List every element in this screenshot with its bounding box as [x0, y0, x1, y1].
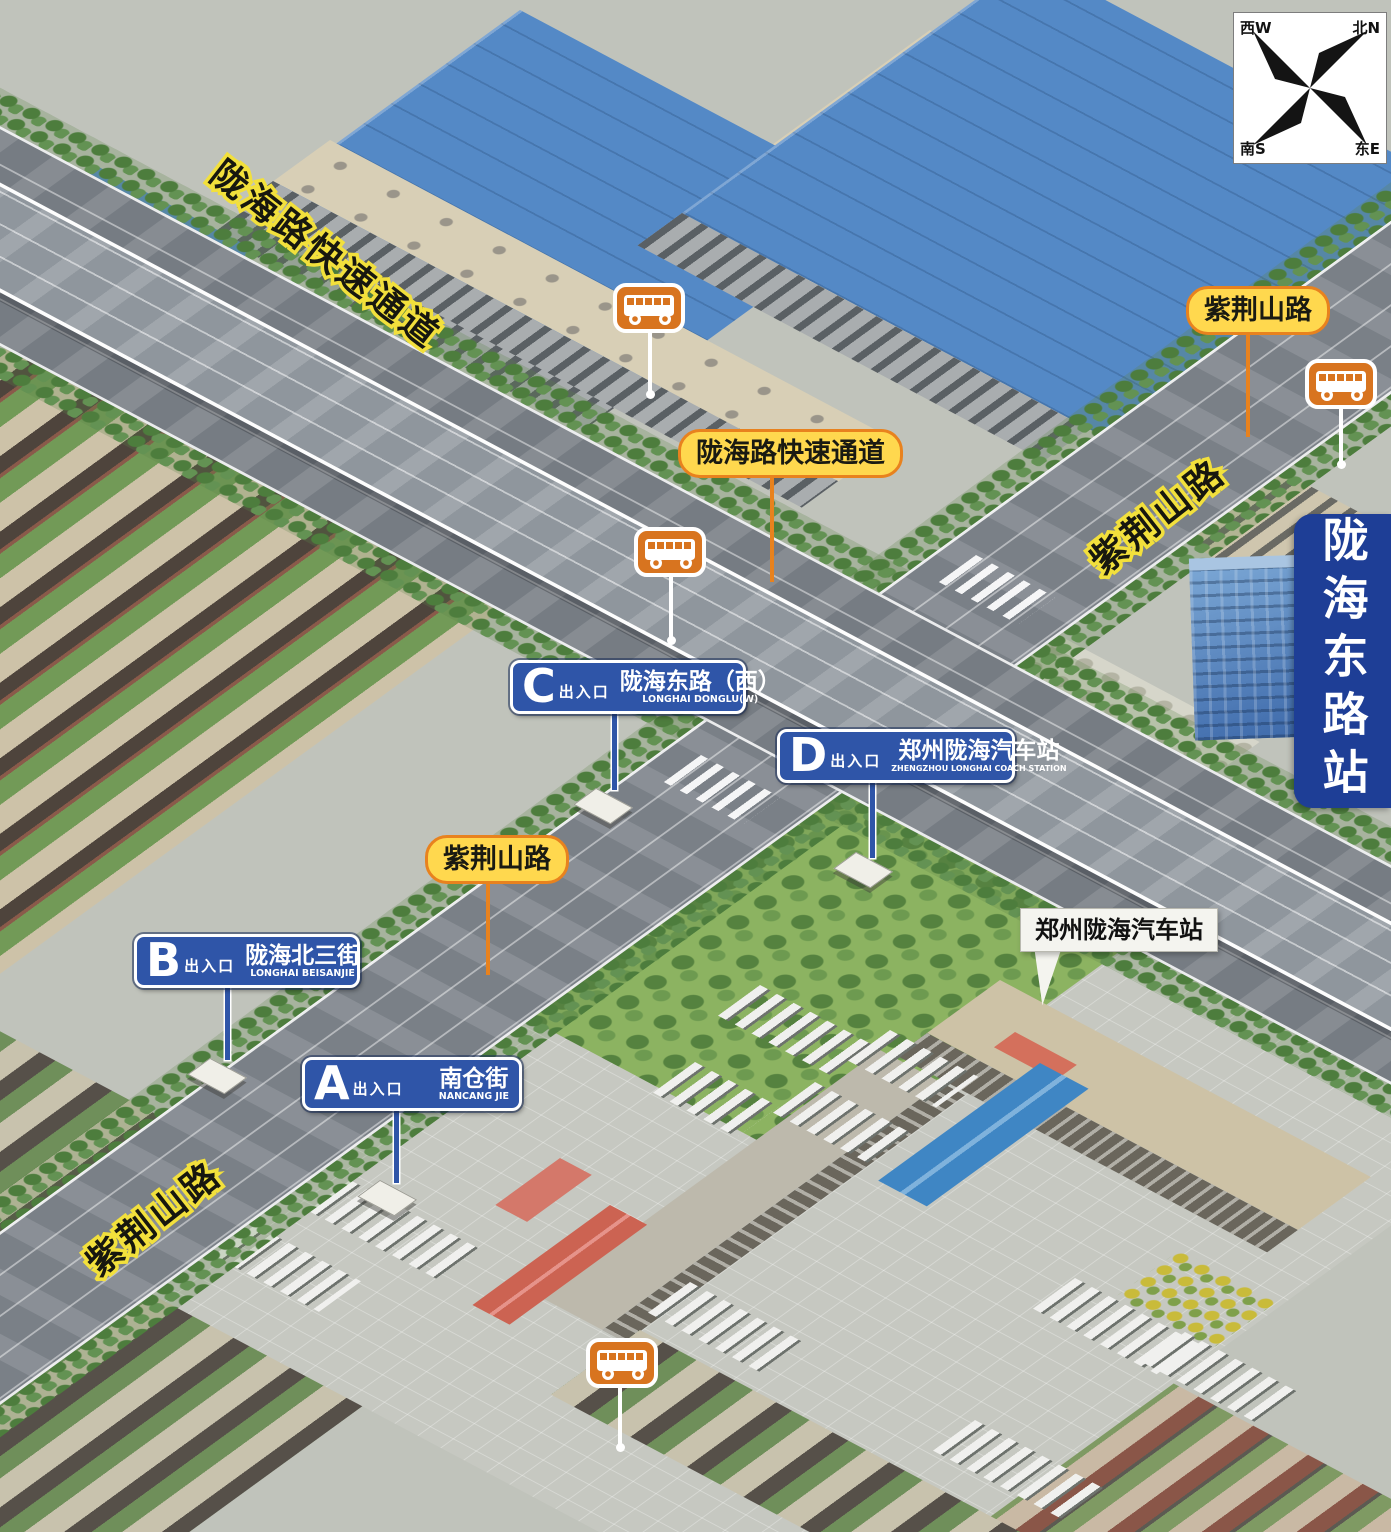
- station-name-banner: 陇海东路站: [1294, 514, 1391, 808]
- entrance-suffix: 出入口: [830, 750, 881, 771]
- entrance-suffix: 出入口: [184, 955, 235, 976]
- entrance-street-zh: 陇海东路（西）: [620, 669, 781, 695]
- entrance-street-en: ZHENGZHOU LONGHAI COACH STATION: [891, 765, 1066, 774]
- bus-stop-dot: [646, 390, 655, 399]
- station-area-map: 陇海路快速通道 紫荆山路 紫荆山路 陇海路快速通道 紫荆山路 紫荆山路 C 出入…: [0, 0, 1391, 1532]
- entrance-sign-c: C 出入口 陇海东路（西） LONGHAI DONGLU(W): [510, 660, 746, 714]
- entrance-street-en: LONGHAI DONGLU(W): [642, 695, 758, 705]
- entrance-sign-a: A 出入口 南仓街 NANCANG JIE: [302, 1057, 522, 1111]
- entrance-suffix: 出入口: [353, 1078, 404, 1099]
- label-pointer: [486, 878, 490, 975]
- label-longhai-expressway: 陇海路快速通道: [678, 429, 903, 478]
- bus-stop-icon: [613, 283, 685, 337]
- bus-stop-pole: [669, 574, 673, 638]
- bus-stop-icon: [634, 527, 706, 581]
- entrance-a-stem: [394, 1109, 399, 1183]
- compass-west-label: 西W: [1240, 17, 1272, 38]
- entrance-suffix: 出入口: [559, 681, 610, 702]
- label-zijingshan-mid: 紫荆山路: [425, 835, 569, 884]
- entrance-street-en: LONGHAI BEISANJIE: [250, 969, 355, 979]
- entrance-street-en: NANCANG JIE: [439, 1092, 509, 1102]
- bus-stop-dot: [667, 636, 676, 645]
- compass-south-label: 南S: [1240, 138, 1266, 159]
- bus-stop-pole: [618, 1385, 622, 1445]
- entrance-street-zh: 郑州陇海汽车站: [898, 738, 1059, 764]
- entrance-letter: D: [789, 735, 827, 776]
- entrance-letter: A: [314, 1063, 350, 1104]
- entrance-street-zh: 南仓街: [439, 1066, 508, 1092]
- compass-north-label: 北N: [1352, 17, 1380, 38]
- entrance-letter: C: [522, 666, 556, 707]
- entrance-sign-d: D 出入口 郑州陇海汽车站 ZHENGZHOU LONGHAI COACH ST…: [777, 729, 1015, 783]
- compass-rose: 西W 北N 南S 东E: [1233, 12, 1387, 164]
- bus-stop-dot: [616, 1443, 625, 1452]
- label-zijingshan-top: 紫荆山路: [1186, 286, 1330, 335]
- bus-stop-pole: [648, 330, 652, 392]
- entrance-b-stem: [225, 984, 230, 1060]
- bus-stop-icon: [586, 1338, 658, 1392]
- entrance-sign-b: B 出入口 陇海北三街 LONGHAI BEISANJIE: [134, 934, 360, 988]
- bus-stop-icon: [1305, 359, 1377, 413]
- entrance-street-zh: 陇海北三街: [245, 943, 360, 969]
- compass-east-label: 东E: [1355, 138, 1380, 159]
- bus-stop-pole: [1339, 406, 1343, 462]
- label-pointer: [1246, 327, 1250, 437]
- entrance-c-stem: [612, 710, 617, 790]
- entrance-d-stem: [870, 783, 875, 858]
- label-pointer: [770, 472, 774, 582]
- entrance-letter: B: [146, 940, 181, 981]
- coach-station-callout: 郑州陇海汽车站: [1020, 908, 1218, 952]
- bus-stop-dot: [1337, 460, 1346, 469]
